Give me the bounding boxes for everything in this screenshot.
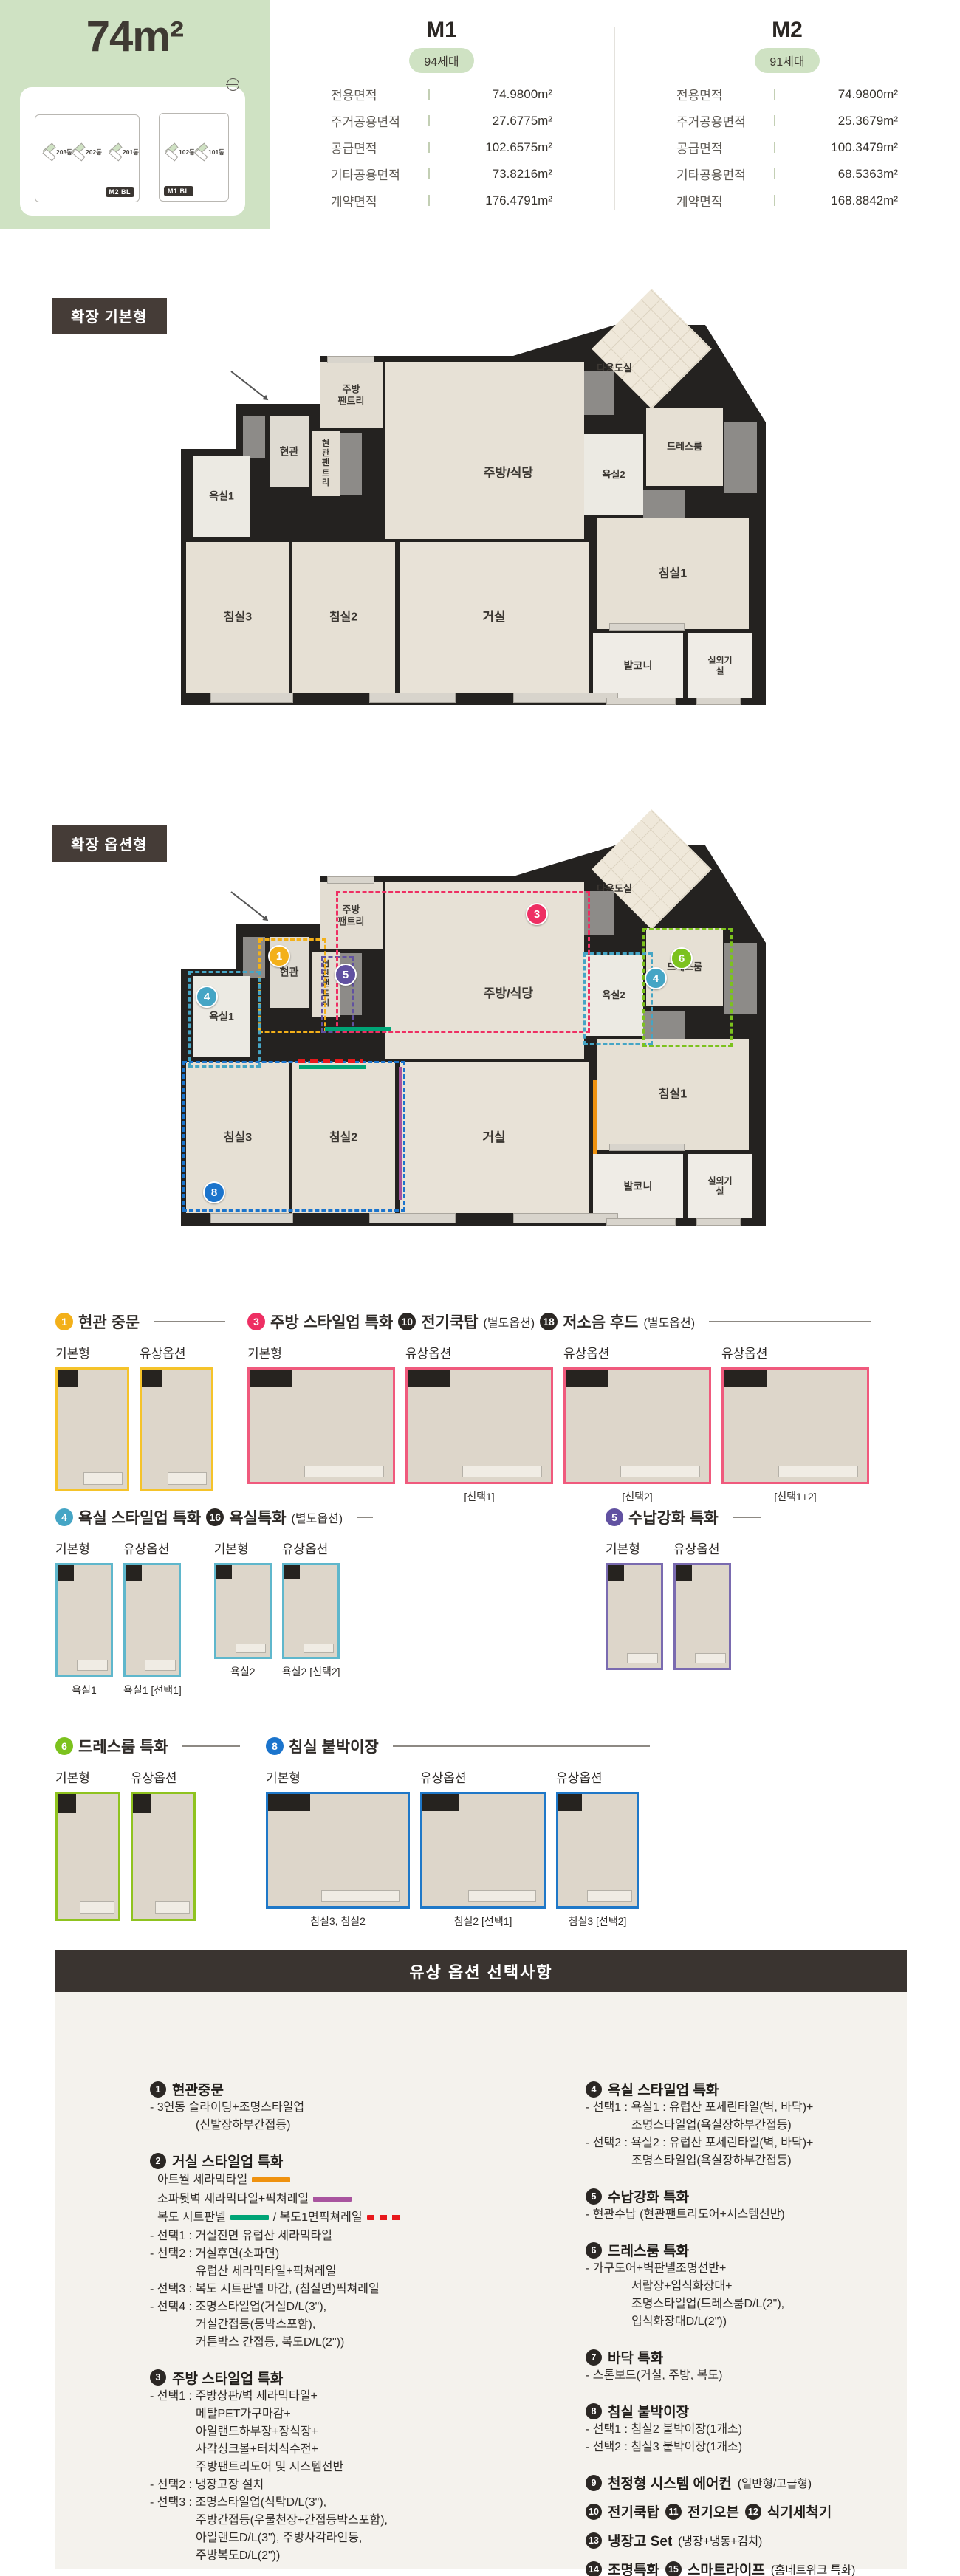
entrance-arrow-icon [230, 371, 267, 400]
paid-option-line: 서랍장+입식화장대+ [586, 2278, 896, 2295]
unit-area-table: 전용면적74.9800m²주거공용면적25.3679m²공급면적100.3479… [676, 85, 898, 210]
option-number-icon: 15 [665, 2561, 682, 2576]
room-label: 거실 [482, 610, 505, 625]
option-number-icon: 5 [586, 2188, 602, 2205]
paid-option-title: 드레스룸 특화 [608, 2240, 689, 2260]
paid-option-item: 2거실 스타일업 특화아트월 세라믹타일소파뒷벽 세라믹타일+픽쳐레일복도 시트… [150, 2151, 523, 2352]
option-figure: 유상옵션[선택2] [563, 1343, 711, 1504]
option-section-title: 욕실 스타일업 특화 [78, 1506, 201, 1528]
option-number-icon: 8 [586, 2403, 602, 2419]
paid-option-title: 조명특화 [608, 2559, 659, 2576]
figure-variant-label: 기본형 [214, 1539, 272, 1557]
option-figure: 유상옵션[선택1+2] [721, 1343, 869, 1504]
figure-variant-label: 기본형 [266, 1768, 410, 1786]
option-section-suffix: (별도옵션) [644, 1313, 696, 1330]
paid-option-line: (신발장하부간접등) [150, 2117, 523, 2134]
paid-option-title: 전기쿡탑 [608, 2501, 659, 2521]
figure-plan-thumb [405, 1367, 553, 1484]
figure-plan-thumb [563, 1367, 711, 1484]
unit-header: 74m² 203동202동201동M2 BL102동101동M1 BL M194… [0, 0, 960, 229]
option-figure: 기본형 [606, 1539, 663, 1670]
table-row: 공급면적100.3479m² [676, 138, 898, 157]
option-number-icon: 4 [55, 1508, 73, 1526]
option-number-icon: 8 [266, 1737, 284, 1755]
floor-room: 욕실1 [193, 456, 250, 537]
area-row-label: 주거공용면적 [676, 111, 774, 130]
paid-option-header: 9천정형 시스템 에어컨(일반형/고급형) [586, 2473, 896, 2493]
area-row-value: 74.9800m² [780, 87, 898, 102]
option-figures: 기본형유상옵션 [55, 1768, 240, 1921]
option-figure: 유상옵션 [673, 1539, 731, 1670]
option-number-icon: 18 [540, 1313, 558, 1330]
legend-text: 아트월 세라믹타일 [157, 2171, 247, 2190]
paid-option-line: 조명스타일업(드레스룸D/L(2"), [586, 2295, 896, 2313]
floor-room: 드레스룸 [646, 408, 723, 486]
paid-option-line: - 선택3 : 조명스타일업(식탁D/L(3"), [150, 2494, 523, 2512]
option-zone-outline [336, 891, 590, 1033]
building-chevron-icon [193, 145, 207, 159]
plan-core-area [338, 433, 362, 495]
paid-option-header: 7바닥 특화 [586, 2347, 896, 2367]
legend-chip [367, 2215, 405, 2220]
floor-room: 현관 [270, 416, 309, 487]
floor-room: 주방 팬트리 [320, 362, 383, 428]
room-label: 침실2 [329, 610, 357, 624]
floor-room: 발코니 [593, 633, 683, 698]
option-number-icon: 6 [586, 2242, 602, 2259]
figure-plan-thumb [131, 1792, 196, 1921]
paid-option-line: - 선택1 : 욕실1 : 유럽산 포세린타일(벽, 바닥)+ [586, 2099, 896, 2117]
block-badge: M1 BL [164, 186, 193, 196]
paid-option-header: 14조명특화15스마트라이프(홈네트워크 특화) [586, 2559, 896, 2576]
floor-room: 실외기실 [688, 633, 752, 698]
figure-plan-thumb [55, 1563, 113, 1677]
option-section: 5수납강화 특화기본형유상옵션 [606, 1506, 761, 1670]
option-section-header: 1현관 중문 [55, 1311, 225, 1333]
table-row: 기타공용면적68.5363m² [676, 165, 898, 183]
figure-variant-label: 기본형 [55, 1343, 129, 1361]
figure-variant-label: 유상옵션 [556, 1768, 639, 1786]
option-section: 1현관 중문기본형유상옵션 [55, 1311, 225, 1491]
building-label: 102동 [179, 148, 195, 157]
site-map-card: 203동202동201동M2 BL102동101동M1 BL [20, 87, 245, 216]
window-mark [513, 1213, 618, 1223]
option-figure: 기본형침실3, 침실2 [266, 1768, 410, 1928]
area-row-value: 168.8842m² [780, 193, 898, 208]
table-row: 기타공용면적73.8216m² [331, 165, 552, 183]
paid-option-item: 9천정형 시스템 에어컨(일반형/고급형) [586, 2473, 896, 2493]
table-row: 전용면적74.9800m² [331, 85, 552, 103]
paid-options-column: 1현관중문- 3연동 슬라이딩+조명스타일업(신발장하부간접등)2거실 스타일업… [150, 2079, 523, 2569]
option-number-icon: 3 [150, 2369, 166, 2386]
figure-plan-thumb [721, 1367, 869, 1484]
paid-option-header: 13냉장고 Set(냉장+냉동+김치) [586, 2530, 896, 2550]
building-chevron-icon [41, 145, 55, 159]
legend-text: / 복도1면픽쳐레일 [273, 2208, 363, 2228]
paid-option-line: - 가구도어+벽판넬조명선반+ [586, 2260, 896, 2278]
legend-chip [252, 2177, 290, 2182]
window-mark [369, 693, 456, 703]
floor-room: 욕실2 [584, 434, 643, 515]
room-label: 드레스룸 [667, 441, 702, 453]
room-label: 발코니 [624, 1180, 653, 1192]
site-building: 201동 [108, 145, 139, 159]
area-row-label: 공급면적 [331, 138, 428, 157]
option-line-mark [325, 1027, 391, 1031]
paid-option-line: 커튼박스 간접등, 복도D/L(2")) [150, 2334, 523, 2352]
section-label-option: 확장 옵션형 [52, 825, 167, 862]
paid-options-panel: 1현관중문- 3연동 슬라이딩+조명스타일업(신발장하부간접등)2거실 스타일업… [55, 1992, 907, 2569]
option-number-icon: 4 [586, 2081, 602, 2098]
floor-room: 실외기실 [688, 1154, 752, 1218]
room-label: 침실1 [659, 566, 687, 580]
option-section: 6드레스룸 특화기본형유상옵션 [55, 1735, 240, 1921]
row-divider [774, 142, 775, 153]
option-number-icon: 6 [55, 1737, 73, 1755]
block-badge: M2 BL [106, 187, 135, 197]
option-figure: 유상옵션[선택1] [405, 1343, 553, 1504]
figure-plan-thumb [673, 1563, 731, 1670]
site-building: 102동 [164, 145, 195, 159]
paid-option-line: - 선택2 : 침실3 붙박이장(1개소) [586, 2439, 896, 2456]
window-mark [327, 356, 374, 363]
building-label: 201동 [123, 148, 139, 157]
option-number-marker: 5 [335, 964, 357, 986]
option-number-icon: 1 [150, 2081, 166, 2098]
figure-plan-thumb [247, 1367, 395, 1484]
room-label: 발코니 [624, 659, 653, 672]
area-row-value: 100.3479m² [780, 140, 898, 155]
figure-caption: 욕실1 [55, 1683, 113, 1697]
option-number-icon: 13 [586, 2532, 602, 2549]
area-row-value: 102.6575m² [434, 140, 552, 155]
header-rule [154, 1321, 225, 1322]
section-label-basic: 확장 기본형 [52, 298, 167, 334]
figure-caption: 욕실2 [214, 1664, 272, 1679]
paid-option-item: 6드레스룸 특화- 가구도어+벽판넬조명선반+서랍장+입식화장대+조명스타일업(… [586, 2240, 896, 2331]
paid-option-header: 2거실 스타일업 특화 [150, 2151, 523, 2171]
window-mark [696, 698, 741, 705]
paid-option-line: - 선택4 : 조명스타일업(거실D/L(3"), [150, 2298, 523, 2316]
room-label: 주방/식당 [484, 466, 533, 481]
area-row-value: 74.9800m² [434, 87, 552, 102]
figure-caption: 욕실1 [선택1] [123, 1683, 182, 1697]
option-number-icon: 14 [586, 2561, 602, 2576]
floor-room: 침실3 [186, 542, 289, 693]
legend-chip [230, 2215, 269, 2220]
option-figure: 유상옵션 [140, 1343, 213, 1491]
paid-option-line: 조명스타일업(욕실장하부간접등) [586, 2117, 896, 2134]
option-number-marker: 6 [671, 947, 693, 969]
paid-option-title: 식기세척기 [767, 2501, 832, 2521]
header-rule [709, 1321, 871, 1322]
option-section-header: 4욕실 스타일업 특화16욕실특화(별도옵션) [55, 1506, 366, 1528]
area-row-value: 27.6775m² [434, 114, 552, 128]
option-section-header: 8침실 붙박이장 [266, 1735, 650, 1757]
option-figure: 기본형 [55, 1343, 129, 1491]
building-chevron-icon [71, 145, 84, 159]
figure-caption: 침실3 [선택2] [556, 1914, 639, 1928]
figure-variant-label: 유상옵션 [131, 1768, 196, 1786]
paid-option-title: 냉장고 Set [608, 2530, 672, 2550]
figure-plan-thumb [140, 1367, 213, 1491]
option-number-icon: 7 [586, 2349, 602, 2366]
unit-area-panel: 74m² 203동202동201동M2 BL102동101동M1 BL [0, 0, 270, 229]
paid-option-line: 주방팬트리도어 및 시스템선반 [150, 2459, 523, 2476]
figure-plan-thumb [556, 1792, 639, 1909]
row-divider [428, 89, 430, 100]
paid-option-suffix: (냉장+냉동+김치) [678, 2532, 762, 2549]
area-row-label: 전용면적 [676, 85, 774, 103]
unit-type-name: M2 [615, 18, 959, 43]
paid-option-line: - 선택2 : 욕실2 : 유럽산 포세린타일(벽, 바닥)+ [586, 2134, 896, 2152]
option-figure: 유상옵션침실3 [선택2] [556, 1768, 639, 1928]
building-label: 202동 [86, 148, 102, 157]
paid-options-column: 4욕실 스타일업 특화- 선택1 : 욕실1 : 유럽산 포세린타일(벽, 바닥… [586, 2079, 896, 2569]
unit-area-table: 전용면적74.9800m²주거공용면적27.6775m²공급면적102.6575… [331, 85, 552, 210]
option-number-icon: 3 [247, 1313, 265, 1330]
paid-option-title: 거실 스타일업 특화 [172, 2151, 283, 2171]
option-number-icon: 5 [606, 1508, 623, 1526]
option-number-marker: 4 [196, 986, 218, 1008]
paid-option-item: 8침실 붙박이장- 선택1 : 침실2 붙박이장(1개소)- 선택2 : 침실3… [586, 2401, 896, 2456]
option-figure: 기본형 [247, 1343, 395, 1484]
option-section: 4욕실 스타일업 특화16욕실특화(별도옵션)기본형욕실1유상옵션욕실1 [선택… [55, 1506, 366, 1697]
building-chevron-icon [108, 145, 121, 159]
option-number-marker: 8 [203, 1181, 225, 1203]
option-number-icon: 11 [665, 2504, 682, 2520]
paid-option-item: 7바닥 특화- 스톤보드(거실, 주방, 복도) [586, 2347, 896, 2385]
option-figure: 유상옵션침실2 [선택1] [420, 1768, 546, 1928]
option-number-icon: 10 [586, 2504, 602, 2520]
paid-option-header: 5수납강화 특화 [586, 2186, 896, 2206]
figure-variant-label: 기본형 [247, 1343, 395, 1361]
site-building: 202동 [71, 145, 102, 159]
site-building: 203동 [41, 145, 72, 159]
paid-option-line: - 선택3 : 복도 시트판넬 마감, (침실면)픽쳐레일 [150, 2281, 523, 2298]
area-row-label: 계약면적 [331, 191, 428, 210]
unit-type-name: M1 [270, 18, 614, 43]
paid-option-title: 주방 스타일업 특화 [172, 2368, 283, 2388]
option-figure: 기본형 [55, 1768, 120, 1921]
paid-option-title: 전기오븐 [688, 2501, 739, 2521]
figure-caption: 침실3, 침실2 [266, 1914, 410, 1928]
paid-option-title: 현관중문 [172, 2079, 224, 2099]
paid-option-line: - 스톤보드(거실, 주방, 복도) [586, 2367, 896, 2385]
window-mark [210, 1213, 293, 1223]
floor-room: 거실 [400, 1062, 589, 1213]
floorplan-page: 74m² 203동202동201동M2 BL102동101동M1 BL M194… [0, 0, 960, 2576]
paid-option-header: 6드레스룸 특화 [586, 2240, 896, 2260]
floor-room: 거실 [400, 542, 589, 693]
paid-option-line: - 선택2 : 거실후면(소파면) [150, 2245, 523, 2263]
header-rule [393, 1745, 650, 1747]
paid-option-header: 8침실 붙박이장 [586, 2401, 896, 2421]
figure-variant-label: 기본형 [55, 1539, 113, 1557]
area-row-label: 기타공용면적 [331, 165, 428, 183]
compass-icon [227, 78, 239, 91]
room-label: 주방 팬트리 [338, 383, 365, 406]
option-figure: 유상옵션 [131, 1768, 196, 1921]
legend-line: 복도 시트판넬 / 복도1면픽쳐레일 [150, 2208, 523, 2228]
legend-line: 아트월 세라믹타일 [150, 2171, 523, 2190]
paid-option-header: 1현관중문 [150, 2079, 523, 2099]
figure-caption: 욕실2 [선택2] [282, 1664, 340, 1679]
row-divider [774, 195, 775, 206]
area-row-label: 전용면적 [331, 85, 428, 103]
building-label: 101동 [208, 148, 224, 157]
paid-option-line: - 선택1 : 거실전면 유럽산 세라믹타일 [150, 2228, 523, 2245]
option-number-marker: 4 [645, 967, 667, 989]
paid-option-title: 욕실 스타일업 특화 [608, 2079, 719, 2099]
figure-variant-label: 유상옵션 [420, 1768, 546, 1786]
figure-variant-label: 유상옵션 [405, 1343, 553, 1361]
paid-option-line: 사각싱크볼+터치식수전+ [150, 2441, 523, 2459]
header-rule [182, 1745, 240, 1747]
paid-option-line: 조명스타일업(욕실장하부간접등) [586, 2152, 896, 2170]
legend-chip [313, 2197, 352, 2202]
window-mark [327, 876, 374, 884]
option-section-title: 침실 붙박이장 [289, 1735, 379, 1757]
paid-option-item: 1현관중문- 3연동 슬라이딩+조명스타일업(신발장하부간접등) [150, 2079, 523, 2134]
row-divider [428, 142, 430, 153]
figure-plan-thumb [55, 1792, 120, 1921]
option-line-mark [299, 1065, 366, 1069]
option-figure: 유상옵션욕실2 [선택2] [282, 1539, 340, 1679]
option-number-icon: 12 [745, 2504, 761, 2520]
option-figure: 유상옵션욕실1 [선택1] [123, 1539, 182, 1697]
option-section: 3주방 스타일업 특화10전기쿡탑(별도옵션)18저소음 후드(별도옵션)기본형… [247, 1311, 871, 1504]
paid-option-title: 스마트라이프 [688, 2559, 765, 2576]
room-label: 현관 팬트리 [319, 439, 333, 488]
floor-room: 주방/식당 [385, 362, 584, 539]
area-row-value: 25.3679m² [780, 114, 898, 128]
option-figures: 기본형욕실1유상옵션욕실1 [선택1]기본형욕실2유상옵션욕실2 [선택2] [55, 1539, 366, 1697]
floor-room: 침실2 [292, 542, 395, 693]
room-label: 침실1 [659, 1087, 687, 1101]
figure-variant-label: 유상옵션 [123, 1539, 182, 1557]
plan-core-area [724, 422, 757, 493]
paid-option-header: 10전기쿡탑11전기오븐12식기세척기 [586, 2501, 896, 2521]
option-section-title: 저소음 후드 [563, 1311, 638, 1333]
paid-option-line: 주방간접등(우물천장+간접등박스포함), [150, 2512, 523, 2529]
paid-option-item: 14조명특화15스마트라이프(홈네트워크 특화) [586, 2559, 896, 2576]
area-row-value: 73.8216m² [434, 167, 552, 182]
header-rule [357, 1517, 373, 1518]
unit-count-badge: 94세대 [409, 48, 473, 73]
room-label: 현관 [280, 446, 299, 458]
figure-caption: [선택2] [563, 1489, 711, 1504]
option-number-icon: 2 [150, 2153, 166, 2169]
paid-option-line: 입식화장대D/L(2")) [586, 2313, 896, 2331]
option-section-title: 드레스룸 특화 [78, 1735, 168, 1757]
table-row: 공급면적102.6575m² [331, 138, 552, 157]
option-zone-outline [188, 971, 261, 1068]
unit-type-column: M194세대전용면적74.9800m²주거공용면적27.6775m²공급면적10… [270, 0, 614, 210]
building-label: 203동 [56, 148, 72, 157]
area-row-value: 176.4791m² [434, 193, 552, 208]
table-row: 계약면적168.8842m² [676, 191, 898, 210]
window-mark [210, 693, 293, 703]
option-section: 8침실 붙박이장기본형침실3, 침실2유상옵션침실2 [선택1]유상옵션침실3 … [266, 1735, 650, 1928]
paid-option-item: 10전기쿡탑11전기오븐12식기세척기 [586, 2501, 896, 2521]
row-divider [428, 168, 430, 179]
paid-option-title: 침실 붙박이장 [608, 2401, 689, 2421]
paid-options-title: 유상 옵션 선택사항 [409, 1960, 552, 1983]
table-row: 주거공용면적27.6775m² [331, 111, 552, 130]
option-section-title: 전기쿡탑 [421, 1311, 478, 1333]
option-line-mark [298, 1059, 363, 1063]
legend-text: 복도 시트판넬 [157, 2208, 226, 2228]
entrance-arrow-icon [230, 891, 267, 921]
option-section-title: 주방 스타일업 특화 [270, 1311, 393, 1333]
option-figure: 기본형욕실1 [55, 1539, 113, 1697]
option-section-title: 욕실특화 [229, 1506, 286, 1528]
window-mark [606, 1218, 676, 1226]
option-section-suffix: (별도옵션) [484, 1313, 535, 1330]
option-line-mark [593, 1080, 597, 1154]
legend-text: 소파뒷벽 세라믹타일+픽쳐레일 [157, 2190, 309, 2209]
row-divider [428, 195, 430, 206]
site-plot: 102동101동M1 BL [159, 113, 229, 202]
figure-caption: 침실2 [선택1] [420, 1914, 546, 1928]
table-row: 계약면적176.4791m² [331, 191, 552, 210]
paid-option-item: 5수납강화 특화- 현관수납 (현관팬트리도어+시스템선반) [586, 2186, 896, 2224]
figure-plan-thumb [282, 1563, 340, 1659]
floor-room: 발코니 [593, 1154, 683, 1218]
option-number-marker: 3 [526, 903, 548, 925]
window-mark [696, 1218, 741, 1226]
paid-option-line: - 선택1 : 침실2 붙박이장(1개소) [586, 2421, 896, 2439]
paid-option-line: 거실간접등(등박스포함), [150, 2316, 523, 2334]
option-figures: 기본형침실3, 침실2유상옵션침실2 [선택1]유상옵션침실3 [선택2] [266, 1768, 650, 1928]
paid-option-item: 4욕실 스타일업 특화- 선택1 : 욕실1 : 유럽산 포세린타일(벽, 바닥… [586, 2079, 896, 2170]
figure-variant-label: 유상옵션 [282, 1539, 340, 1557]
option-section-header: 5수납강화 특화 [606, 1506, 761, 1528]
figure-plan-thumb [123, 1563, 181, 1677]
paid-options-title-bar: 유상 옵션 선택사항 [55, 1950, 907, 1992]
option-number-icon: 16 [206, 1508, 224, 1526]
plan-core-area [243, 416, 265, 458]
room-label: 거실 [482, 1130, 505, 1145]
paid-option-line: 유럽산 세라믹타일+픽쳐레일 [150, 2263, 523, 2281]
window-mark [606, 698, 676, 705]
option-figure: 기본형욕실2 [214, 1539, 272, 1679]
paid-option-suffix: (일반형/고급형) [738, 2475, 812, 2491]
figure-variant-label: 유상옵션 [721, 1343, 869, 1361]
option-figures: 기본형유상옵션 [55, 1343, 225, 1491]
option-number-icon: 1 [55, 1313, 73, 1330]
room-label: 침실3 [224, 610, 252, 624]
paid-option-line: - 선택2 : 냉장고장 설치 [150, 2476, 523, 2494]
area-row-label: 공급면적 [676, 138, 774, 157]
legend-line: 소파뒷벽 세라믹타일+픽쳐레일 [150, 2190, 523, 2209]
floor-room: 침실1 [597, 518, 749, 629]
paid-option-title: 수납강화 특화 [608, 2186, 689, 2206]
unit-type-column: M291세대전용면적74.9800m²주거공용면적25.3679m²공급면적10… [615, 0, 959, 210]
room-label: 욕실2 [602, 469, 625, 481]
option-number-icon: 10 [398, 1313, 416, 1330]
figure-variant-label: 유상옵션 [140, 1343, 213, 1361]
window-mark [609, 1144, 685, 1151]
paid-option-line: 메탈PET가구마감+ [150, 2405, 523, 2423]
figure-plan-thumb [55, 1367, 129, 1491]
paid-option-title: 천정형 시스템 에어컨 [608, 2473, 732, 2493]
site-plot: 203동202동201동M2 BL [35, 114, 140, 202]
paid-option-line: - 선택1 : 주방상판/벽 세라믹타일+ [150, 2388, 523, 2405]
figure-plan-thumb [420, 1792, 546, 1909]
area-row-value: 68.5363m² [780, 167, 898, 182]
